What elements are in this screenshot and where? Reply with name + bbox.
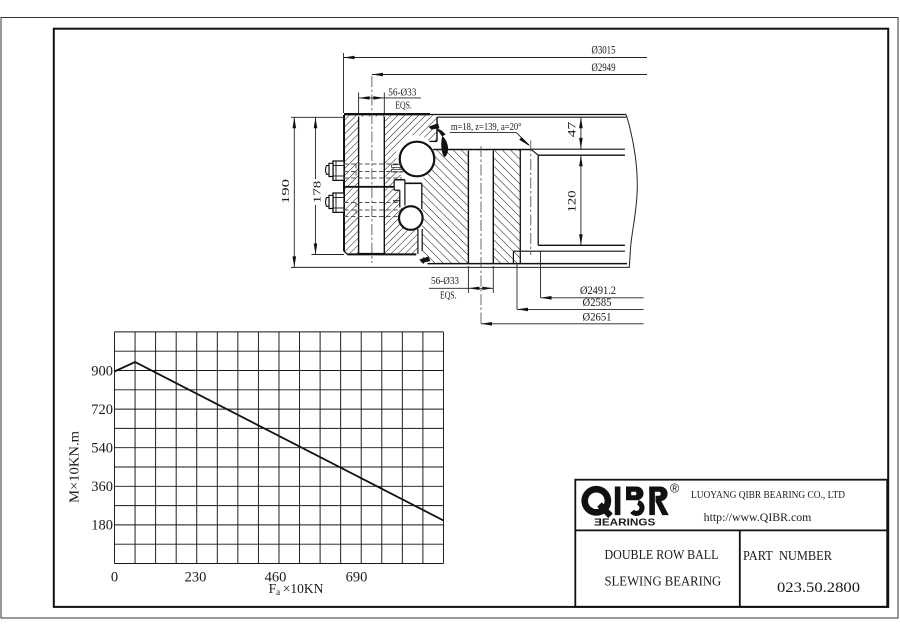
svg-text:0: 0	[111, 570, 118, 586]
svg-text:EQS.: EQS.	[440, 290, 457, 302]
svg-text:180: 180	[91, 518, 113, 534]
svg-text:SLEWING BEARING: SLEWING BEARING	[605, 575, 722, 590]
svg-text:360: 360	[91, 479, 113, 495]
svg-text:230: 230	[185, 570, 207, 586]
svg-text:PART NUMBER: PART NUMBER	[743, 549, 833, 564]
svg-text:178: 178	[312, 180, 324, 203]
svg-text:56-Ø33: 56-Ø33	[431, 275, 459, 287]
svg-text:56-Ø33: 56-Ø33	[388, 87, 416, 99]
svg-text:EQS.: EQS.	[395, 100, 412, 112]
svg-text:Ø2491.2: Ø2491.2	[580, 285, 616, 297]
svg-text:Ø3015: Ø3015	[592, 45, 616, 57]
svg-text:Ø2949: Ø2949	[592, 62, 616, 74]
svg-text:Ø2585: Ø2585	[583, 297, 612, 309]
svg-text:DOUBLE ROW BALL: DOUBLE ROW BALL	[605, 548, 719, 563]
svg-text:®: ®	[670, 482, 680, 496]
svg-text:720: 720	[91, 402, 113, 418]
svg-text:LUOYANG QIBR BEARING CO., LTD: LUOYANG QIBR BEARING CO., LTD	[691, 489, 845, 501]
svg-text:190: 190	[280, 178, 292, 204]
svg-text:540: 540	[91, 441, 113, 457]
svg-text:Ø2651: Ø2651	[583, 312, 612, 324]
svg-text:ƎEARINGS: ƎEARINGS	[594, 518, 656, 529]
svg-text:M×10KN.m: M×10KN.m	[67, 430, 82, 503]
svg-text:47: 47	[567, 121, 579, 137]
svg-text:023.50.2800: 023.50.2800	[777, 580, 860, 596]
svg-text:690: 690	[346, 570, 368, 586]
svg-text:120: 120	[567, 190, 579, 212]
svg-text:900: 900	[91, 363, 113, 379]
svg-text:http://www.QIBR.com: http://www.QIBR.com	[704, 512, 812, 524]
svg-text:m=18, z=139, a=20°: m=18, z=139, a=20°	[451, 122, 522, 133]
